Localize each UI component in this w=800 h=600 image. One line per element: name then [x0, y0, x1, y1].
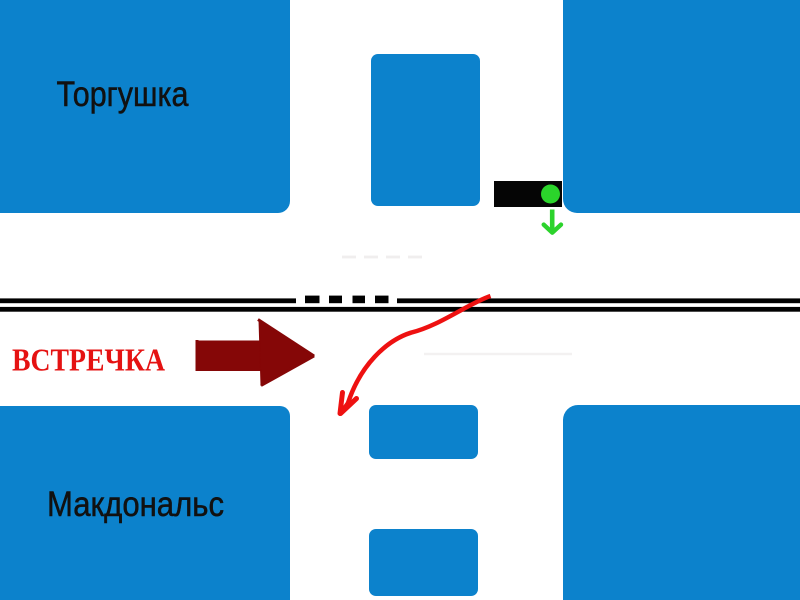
- svg-text:Макдональс: Макдональс: [47, 485, 224, 524]
- svg-text:Торгушка: Торгушка: [57, 75, 189, 114]
- svg-text:ВСТРЕЧКА: ВСТРЕЧКА: [12, 343, 165, 378]
